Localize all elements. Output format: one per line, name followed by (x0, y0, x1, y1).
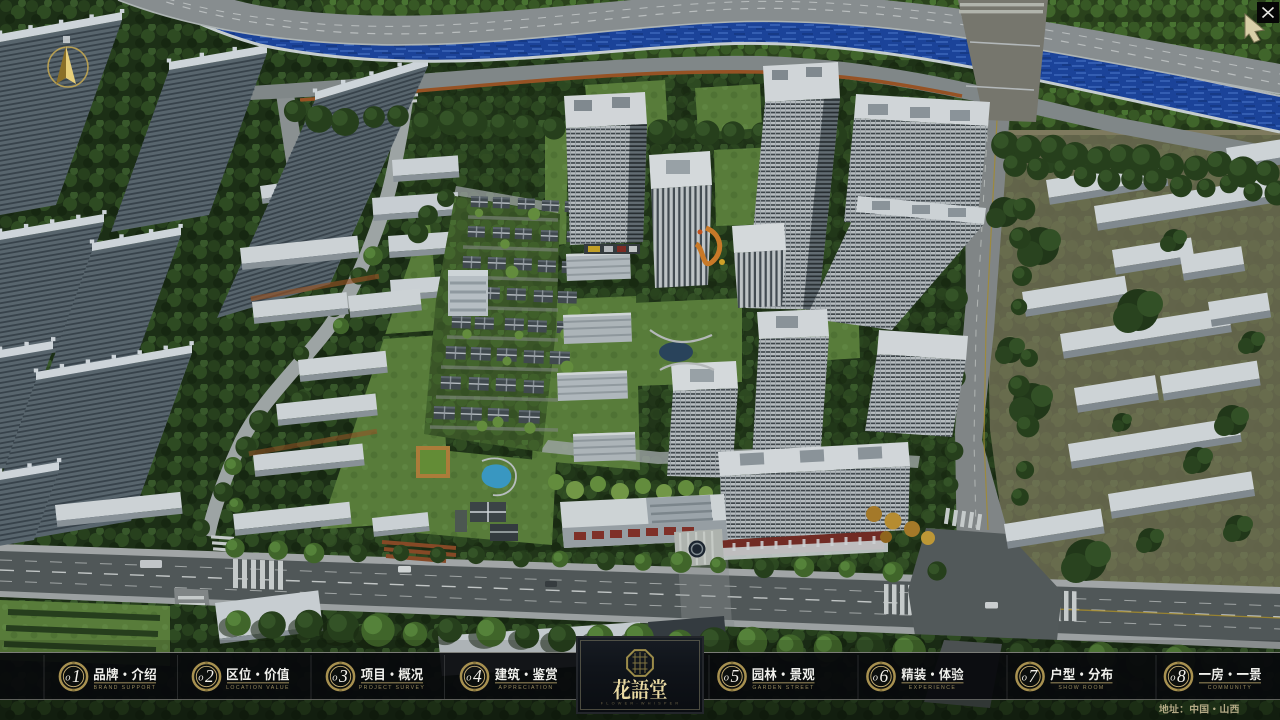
svg-text:o: o (332, 672, 337, 683)
svg-text:o: o (1170, 672, 1175, 683)
svg-text:GARDEN STREET: GARDEN STREET (752, 685, 814, 691)
svg-text:1: 1 (72, 666, 81, 686)
svg-text:o: o (466, 672, 471, 683)
svg-text:7: 7 (1029, 666, 1039, 686)
svg-text:o: o (873, 672, 878, 683)
svg-text:o: o (724, 672, 729, 683)
svg-text:o: o (198, 672, 203, 683)
svg-text:APPRECIATION: APPRECIATION (498, 685, 553, 691)
svg-text:o: o (65, 672, 70, 683)
svg-text:PROJECT SURVEY: PROJECT SURVEY (359, 685, 425, 691)
svg-text:COMMUNITY: COMMUNITY (1208, 685, 1253, 691)
svg-text:8: 8 (1177, 666, 1186, 686)
svg-text:5: 5 (731, 666, 740, 686)
svg-text:o: o (1022, 672, 1027, 683)
svg-text:LOCATION VALUE: LOCATION VALUE (226, 685, 290, 691)
svg-text:4: 4 (473, 666, 482, 686)
svg-text:3: 3 (338, 666, 348, 686)
svg-text:2: 2 (205, 666, 214, 686)
svg-text:BRAND SUPPORT: BRAND SUPPORT (94, 685, 157, 691)
svg-text:EXPERIENCE: EXPERIENCE (909, 685, 956, 691)
svg-text:SHOW ROOM: SHOW ROOM (1058, 685, 1104, 691)
svg-text:6: 6 (880, 666, 889, 686)
svg-text:F L O W E R · W H I S P E R: F L O W E R · W H I S P E R (601, 702, 679, 706)
